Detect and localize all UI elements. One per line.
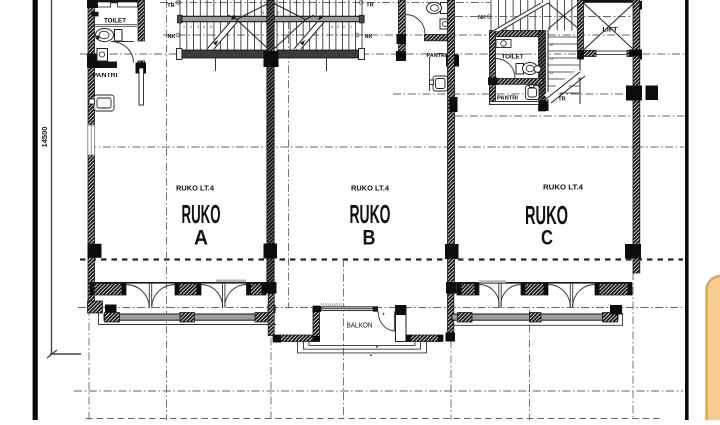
svg-text:8: 8 (262, 11, 264, 15)
svg-text:1: 1 (350, 25, 352, 29)
svg-text:RUKO LT.4: RUKO LT.4 (176, 186, 214, 193)
svg-text:3: 3 (337, 25, 339, 29)
svg-text:11: 11 (550, 57, 554, 61)
svg-text:A: A (194, 227, 208, 250)
svg-text:3: 3 (197, 25, 199, 29)
svg-text:TR: TR (558, 97, 565, 103)
svg-text:2: 2 (190, 25, 192, 29)
svg-text:RUKO LT.4: RUKO LT.4 (543, 185, 583, 192)
svg-text:RUKO: RUKO (525, 200, 568, 230)
svg-text:TR: TR (366, 3, 373, 9)
svg-text:NK: NK (478, 15, 486, 21)
svg-text:5: 5 (210, 25, 212, 29)
svg-text:12: 12 (550, 71, 554, 75)
svg-text:B: B (363, 227, 376, 250)
svg-text:10: 10 (550, 43, 554, 47)
svg-text:C: C (541, 227, 553, 250)
svg-text:RUKO: RUKO (350, 199, 391, 229)
svg-text:PANTRI: PANTRI (497, 96, 518, 102)
svg-text:LIFT: LIFT (603, 27, 618, 34)
svg-text:RUKO: RUKO (182, 199, 221, 229)
svg-text:14500: 14500 (40, 127, 49, 148)
svg-text:4: 4 (331, 25, 333, 29)
svg-text:TOILET: TOILET (104, 18, 126, 25)
svg-text:TOILET: TOILET (502, 54, 524, 61)
svg-text:9: 9 (277, 11, 279, 15)
svg-text:BALKON: BALKON (347, 323, 373, 330)
svg-text:RUKO LT.4: RUKO LT.4 (351, 186, 389, 193)
svg-text:NK: NK (364, 34, 372, 40)
svg-text:TR: TR (167, 3, 174, 9)
svg-text:NK: NK (167, 34, 175, 40)
svg-text:4: 4 (203, 25, 205, 29)
svg-text:1: 1 (183, 25, 185, 29)
svg-text:PANTRI: PANTRI (93, 73, 118, 79)
svg-text:2: 2 (343, 25, 345, 29)
